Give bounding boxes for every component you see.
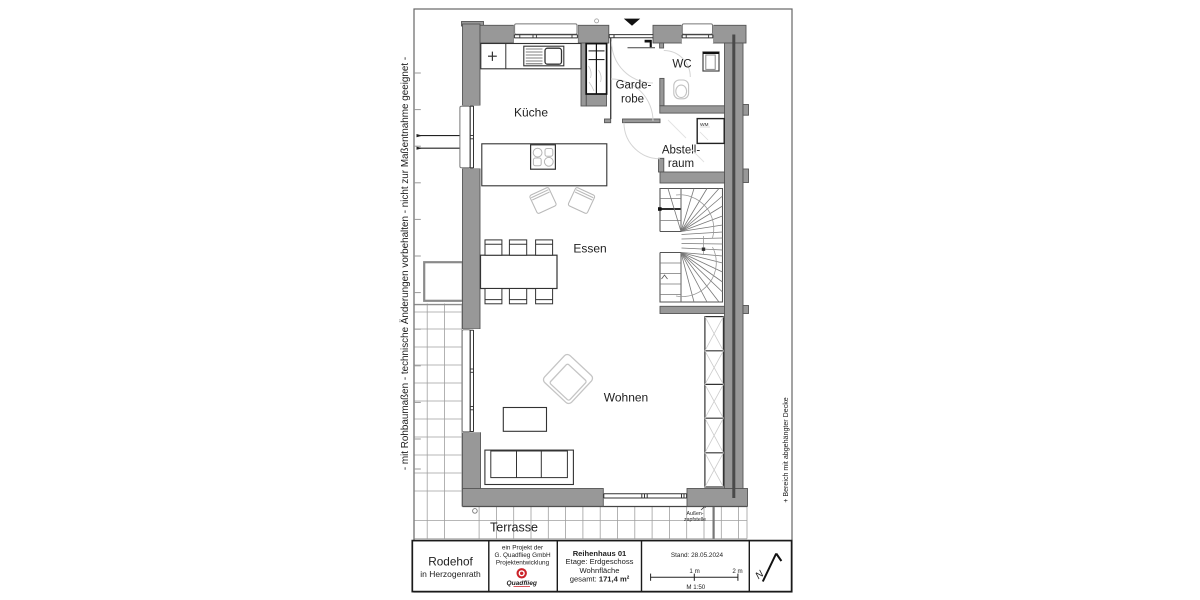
svg-text:Garde-: Garde- <box>616 80 652 92</box>
svg-text:Stand: 28.05.2024: Stand: 28.05.2024 <box>671 552 724 559</box>
svg-text:robe: robe <box>621 94 644 106</box>
svg-text:WC: WC <box>672 59 691 71</box>
svg-text:Quadflieg: Quadflieg <box>506 580 536 587</box>
svg-text:gesamt: 171,4 m²: gesamt: 171,4 m² <box>570 574 630 583</box>
svg-text:Wohnen: Wohnen <box>604 391 648 405</box>
svg-text:G. Quadflieg GmbH: G. Quadflieg GmbH <box>494 552 551 559</box>
svg-text:2 m: 2 m <box>732 568 742 575</box>
svg-text:ein Projekt der: ein Projekt der <box>502 545 544 552</box>
svg-text:1 m: 1 m <box>689 568 699 575</box>
svg-text:Essen: Essen <box>573 242 606 256</box>
svg-text:Abstell-: Abstell- <box>662 145 701 157</box>
svg-text:in Herzogenrath: in Herzogenrath <box>420 569 481 579</box>
svg-text:M 1:50: M 1:50 <box>686 584 705 591</box>
svg-text:raum: raum <box>668 158 694 170</box>
svg-text:Rodehof: Rodehof <box>428 555 473 569</box>
svg-text:- mit Rohbaumaßen - technische: - mit Rohbaumaßen - technische Änderunge… <box>400 57 411 470</box>
svg-text:Projektentwicklung: Projektentwicklung <box>496 560 550 567</box>
svg-text:+ Bereich mit abgehängter Deck: + Bereich mit abgehängter Decke <box>782 397 790 503</box>
svg-text:Küche: Küche <box>514 106 548 120</box>
svg-text:zapfstelle: zapfstelle <box>684 517 706 523</box>
svg-text:Terrasse: Terrasse <box>490 521 538 535</box>
